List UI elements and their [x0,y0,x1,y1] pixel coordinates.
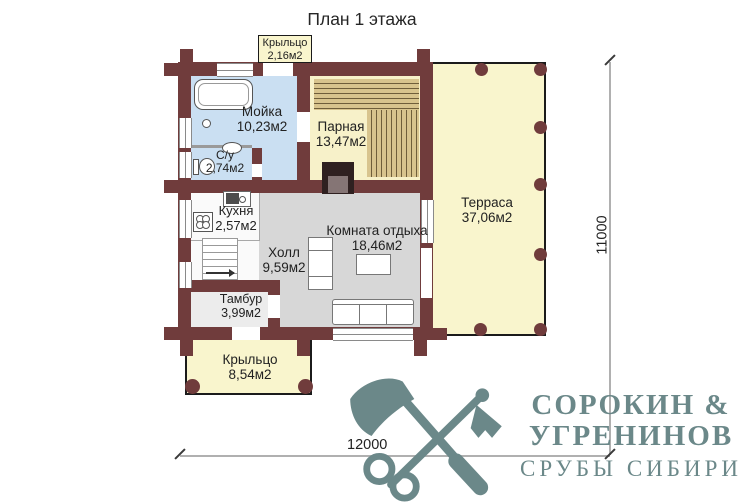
terrace-column [534,323,547,336]
shower-symbol [202,119,211,128]
log-end [164,63,178,76]
page-title: План 1 этажа [307,9,416,30]
room-name: Парная [316,119,367,134]
room-label-vestibule: Тамбур 3,99м2 [220,293,262,320]
room-area: 9,59м2 [262,260,305,275]
room-area: 18,46м2 [326,238,427,253]
terrace-column [534,248,547,261]
log-end [180,340,193,356]
window-bathroom-left [179,152,192,178]
room-name: Кухня [215,203,256,218]
cabinet-shelf [309,276,332,277]
sauna-heater-front [328,176,348,193]
sauna-heater [322,162,354,194]
room-name: Терраса [461,195,513,210]
sauna-bench-right [367,110,419,177]
terrace-column [475,63,488,76]
sofa [332,299,414,325]
room-label-hall: Холл 9,59м2 [262,245,305,275]
door-bathroom [252,164,262,177]
sofa-backrest [333,304,413,305]
room-label-steam-room: Парная 13,47м2 [316,119,367,149]
room-name: Крыльцо [222,352,277,367]
window-hall-left [179,262,192,288]
dimension-tick [174,448,185,459]
room-area: 2,16м2 [259,50,311,63]
room-label-bathroom: С/у 2,74м2 [206,149,244,175]
terrace-column [474,323,487,336]
sauna-bench-top [314,79,419,110]
window-kitchen-left [179,200,192,238]
room-label-terrace: Терраса 37,06м2 [461,195,513,225]
door-porch-top [263,62,293,76]
log-end [433,328,447,340]
porch-top-box: Крыльцо 2,16м2 [258,35,312,63]
door-vestibule-porch [232,327,260,340]
room-name: Тамбур [220,293,262,307]
sofa-cushion-divider [359,304,360,324]
porch-column [185,379,200,394]
room-label-porch-bottom: Крыльцо 8,54м2 [222,352,277,382]
bathtub-inner [198,83,249,106]
porch-column [298,379,313,394]
log-end [417,49,430,62]
room-name: Комната отдыха [326,223,427,238]
room-area: 3,99м2 [220,307,262,321]
room-label-lounge: Комната отдыха 18,46м2 [326,223,427,253]
terrace-column [534,178,547,191]
room-area: 8,54м2 [222,367,277,382]
log-end [164,180,178,193]
logo-company-line1: СОРОКИН & [510,389,752,422]
window-washroom-top [217,63,253,77]
log-end [164,327,178,340]
log-end [297,340,310,356]
logo-tagline: СРУБЫ СИБИРИ [510,456,752,482]
axe-and-key-logo-icon [330,366,520,502]
terrace-column [534,121,547,134]
door-vestibule-hall [268,295,280,318]
window-lounge-bottom [333,328,413,341]
logo-company-line2: УГРЕНИНОВ [510,420,752,453]
window-washroom-left [179,118,192,148]
room-label-kitchen: Кухня 2,57м2 [215,203,256,233]
coffee-table [356,254,391,275]
terrace-column [534,63,547,76]
stairs-direction-arrow [206,272,234,274]
room-area: 37,06м2 [461,210,513,225]
room-name: Крыльцо [259,37,311,50]
wall-vestibule-top [188,280,280,292]
log-end [180,49,193,62]
sofa-cushion-divider [386,304,387,324]
stove-burner [202,221,210,229]
dimension-height-label: 11000 [595,215,611,254]
room-name: Холл [262,245,305,260]
room-area: 2,74м2 [206,162,244,175]
room-area: 13,47м2 [316,134,367,149]
door-steam-room [297,112,310,142]
floor-plan-page: План 1 этажа [0,0,753,502]
door-terrace [421,248,432,298]
room-area: 10,23м2 [237,119,288,134]
arrow-head [229,269,235,277]
kitchen-faucet [239,196,246,203]
log-end [414,340,427,356]
room-area: 2,57м2 [215,218,256,233]
room-label-washroom: Мойка 10,23м2 [237,104,288,134]
room-name: Мойка [237,104,288,119]
kitchen-stove [193,212,213,232]
